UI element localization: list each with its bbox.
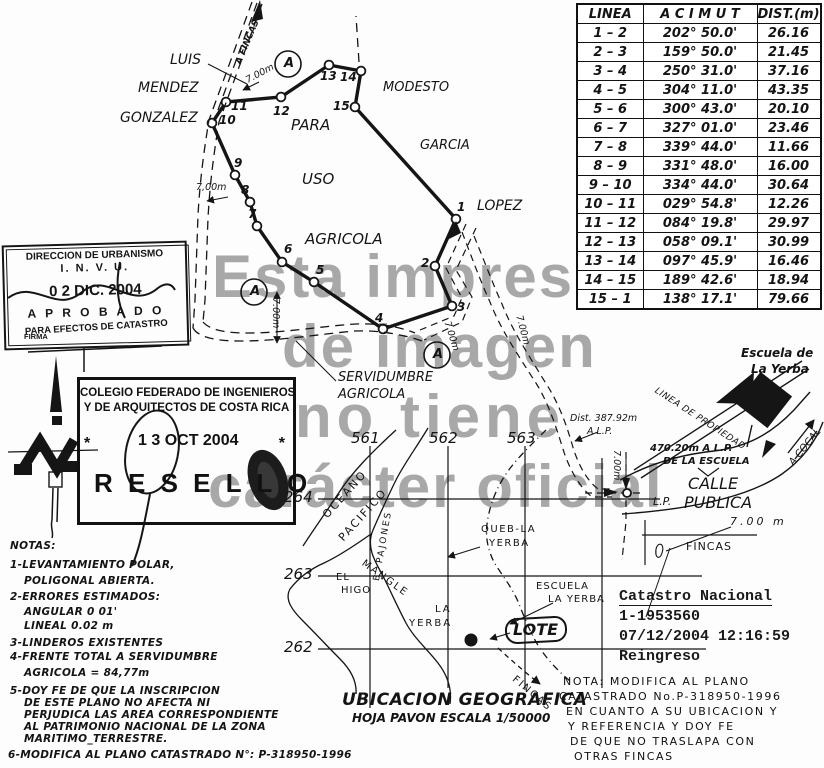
dim-7m-lp: 7.00m <box>611 450 622 480</box>
servidumbre-label-2: AGRICOLA <box>338 387 405 402</box>
map-subtitle: HOJA PAVON ESCALA 1/50000 <box>352 711 550 725</box>
use-label-para: PARA <box>291 116 330 134</box>
vertex-label: 12 <box>273 104 290 118</box>
escuela-map-label-1: ESCUELA <box>536 581 589 592</box>
resello-star-left: * <box>84 435 90 453</box>
resello-line-1: COLEGIO FEDERADO DE INGENIEROS <box>80 387 293 399</box>
table-row: 9 – 10334° 44.0'30.64 <box>577 176 821 195</box>
nota-manuscrita-4: Y REFERENCIA Y DOY FE <box>568 720 735 733</box>
vertex-label: 11 <box>231 99 248 113</box>
nota-1b: POLIGONAL ABIERTA. <box>24 575 155 587</box>
notas-title: NOTAS: <box>10 540 56 552</box>
table-row: 10 – 11029° 54.8'12.26 <box>577 195 821 214</box>
col-header-linea: LINEA <box>577 4 643 24</box>
catastro-reingreso: Reingreso <box>619 648 700 665</box>
map-title: UBICACION GEOGRAFICA <box>342 690 587 710</box>
use-label-agricola: AGRICOLA <box>305 230 383 248</box>
nota-4b: AGRICOLA = 84,77m <box>24 667 150 679</box>
nota-5e: MARITIMO_TERRESTRE. <box>24 733 168 745</box>
la-yerba-label-1: LA <box>435 604 452 615</box>
nota-3: 3-LINDEROS EXISTENTES <box>10 637 163 649</box>
quebrada-label-2: YERBA <box>489 538 530 549</box>
table-row: 8 – 9331° 48.0'16.00 <box>577 157 821 176</box>
resello-line-2: Y DE ARQUITECTOS DE COSTA RICA <box>80 402 293 414</box>
col-header-dist: DIST.(m) <box>757 4 821 24</box>
vertex-label: 14 <box>340 70 357 84</box>
servidumbre-label-1: SERVIDUMBRE <box>338 370 433 385</box>
nota-6: 6-MODIFICA AL PLANO CATASTRADO N°: P-318… <box>8 749 352 761</box>
neighbor-mendez: MENDEZ <box>138 80 199 96</box>
table-row: 4 – 5304° 11.0'43.35 <box>577 81 821 100</box>
table-row: 6 – 7327° 01.0'23.46 <box>577 119 821 138</box>
grid-row-263: 263 <box>284 565 313 583</box>
col-header-acimut: A C I M U T <box>643 4 757 24</box>
table-row: 11 – 12084° 19.8'29.97 <box>577 214 821 233</box>
table-row: 5 – 6300° 43.0'20.10 <box>577 100 821 119</box>
lp-point-circle <box>623 489 631 497</box>
nota-1a: 1-LEVANTAMIENTO POLAR, <box>10 559 175 571</box>
quebrada-label-1: QUEB-LA <box>481 524 536 535</box>
marker-a-label: A <box>250 284 260 299</box>
neighbor-lopez: LOPEZ <box>477 198 522 214</box>
neighbor-garcia: GARCIA <box>420 138 470 153</box>
nota-manuscrita-6: OTRAS FINCAS <box>574 750 674 763</box>
vertex-label: 1 <box>457 200 465 214</box>
lp-right-arrowhead <box>604 488 618 497</box>
escuela-label-1: Escuela de <box>741 346 813 360</box>
neighbor-modesto: MODESTO <box>383 80 449 95</box>
marker-a-label: A <box>433 347 443 362</box>
table-row: 14 – 15189° 42.6'18.94 <box>577 271 821 290</box>
table-row: 1 – 2202° 50.0'26.16 <box>577 24 821 43</box>
nota-manuscrita-5: DE QUE NO TRASLAPA CON <box>570 735 756 748</box>
table-row: 7 – 8339° 44.0'11.66 <box>577 138 821 157</box>
grid-row-262: 262 <box>284 638 313 656</box>
resello-stamp: COLEGIO FEDERADO DE INGENIEROS Y DE ARQU… <box>77 377 296 525</box>
vertex-label: 7 <box>248 207 256 221</box>
nota-manuscrita-2: CATASTRADO No.P-318950-1996 <box>559 690 782 703</box>
table-row: 12 – 13058° 09.1'30.99 <box>577 233 821 252</box>
vertex-label: 3 <box>457 300 465 314</box>
grid-col-562: 562 <box>429 429 458 447</box>
bearing-distance-table: LINEA A C I M U T DIST.(m) 1 – 2202° 50.… <box>576 3 822 310</box>
vertex-label: 9 <box>234 156 242 170</box>
nota-5d: AL PATRIMONIO NACIONAL DE LA ZONA <box>24 721 266 733</box>
lp-down-arrowhead <box>622 478 630 490</box>
marker-a-label: A <box>284 56 294 71</box>
vertex-label: 4 <box>375 311 383 325</box>
road-direction-arrowhead <box>762 440 776 458</box>
school-dist-label-2: DE LA ESCUELA <box>663 456 750 467</box>
escuela-map-label-2: LA YERBA <box>548 594 605 605</box>
resello-date: 1 3 OCT 2004 <box>138 432 239 450</box>
resello-title: R E S E L L O <box>94 468 311 499</box>
nota-5a: 5-DOY FE DE QUE LA INSCRIPCION <box>10 685 220 697</box>
grid-col-561: 561 <box>351 429 380 447</box>
grid-col-563: 563 <box>507 429 536 447</box>
firma-label: FIRMA <box>24 332 48 341</box>
vertex-label: 6 <box>284 242 292 256</box>
neighbor-luis: LUIS <box>170 52 201 68</box>
nota-5b: DE ESTE PLANO NO AFECTA NI <box>24 697 210 709</box>
dist-lp-label-1: Dist. 387.92m <box>570 413 637 424</box>
catastro-number: 1-1953560 <box>619 608 700 625</box>
vertex-label: 13 <box>320 69 337 83</box>
location-map-rivers <box>288 428 570 704</box>
catastro-title: Catastro Nacional <box>619 588 772 606</box>
nota-2c: LINEAL 0.02 m <box>24 620 113 632</box>
el-higo-label-2: HIGO <box>341 585 371 596</box>
la-yerba-label-2: YERBA <box>409 618 452 629</box>
catastro-datetime: 07/12/2004 12:16:59 <box>619 628 790 645</box>
vertex-label: 2 <box>421 256 429 270</box>
dim-7m-left: 7,00m <box>196 182 226 193</box>
nota-4a: 4-FRENTE TOTAL A SERVIDUMBRE <box>10 651 218 663</box>
table-row: 2 – 3159° 50.0'21.45 <box>577 43 821 62</box>
nota-2a: 2-ERRORES ESTIMADOS: <box>10 591 160 603</box>
el-higo-label-1: EL <box>336 572 350 583</box>
vertex-label: 8 <box>241 183 249 197</box>
nota-5c: PERJUDICA LAS AREA CORRESPONDIENTE <box>24 709 279 721</box>
dim-7m-fincas: 7.00 m <box>730 515 787 528</box>
table-row: 15 – 1138° 17.1'79.66 <box>577 290 821 310</box>
school-symbol <box>716 372 792 428</box>
dist-lp-label-2: A L.P. <box>587 426 612 437</box>
nota-manuscrita-1: NOTA: MODIFICA AL PLANO <box>563 675 750 688</box>
resello-star-right: * <box>279 435 285 453</box>
dim-7m-vert-road: 7.00m <box>270 298 281 328</box>
vertex-label: 5 <box>316 263 324 277</box>
use-label-uso: USO <box>302 170 334 188</box>
fincas-box-label: FINCAS <box>686 540 732 553</box>
table-row: 3 – 4250° 31.0'37.16 <box>577 62 821 81</box>
lote-label: LOTE <box>513 620 558 639</box>
lp-label: L.P. <box>653 495 671 508</box>
vertex-label: 15 <box>333 99 350 113</box>
table-row: 13 – 14097° 45.9'16.46 <box>577 252 821 271</box>
nota-2b: ANGULAR 0 01' <box>24 606 117 618</box>
nota-manuscrita-3: EN CUANTO A SU UBICACION Y <box>566 705 778 718</box>
calle-label: CALLE <box>688 474 738 493</box>
publica-label: PUBLICA <box>684 493 752 512</box>
plano-catastrado-scan: Esta impresión de imagen no tiene caráct… <box>0 0 824 768</box>
neighbor-gonzalez: GONZALEZ <box>120 110 198 126</box>
school-dist-label-1: 470.20m A L.P. <box>650 443 732 454</box>
vertex-label: 10 <box>219 113 236 127</box>
escuela-label-2: La Yerba <box>751 362 809 376</box>
